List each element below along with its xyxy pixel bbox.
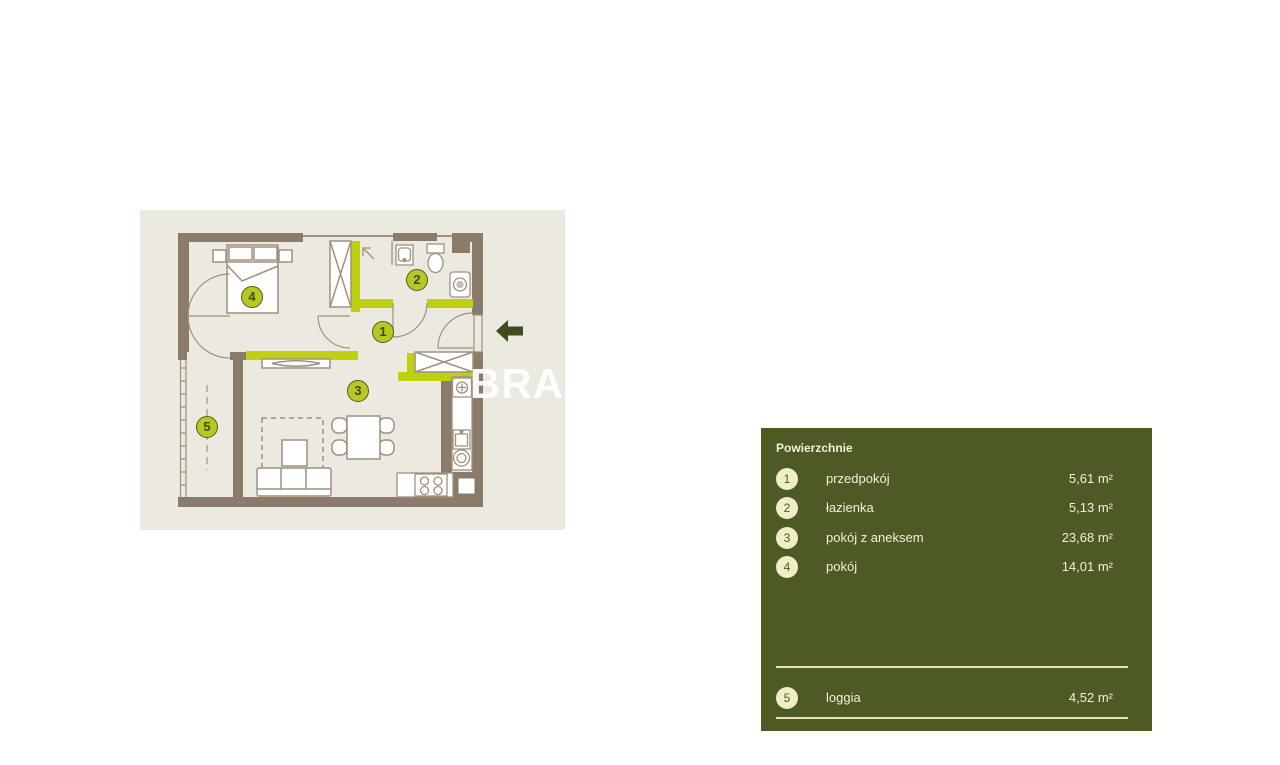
legend-item-number: 1 bbox=[776, 468, 798, 490]
legend-row-pokoj: 4 pokój 14,01 m² bbox=[761, 556, 1152, 578]
watermark: BRAC bbox=[470, 360, 565, 408]
entrance-door-arc bbox=[438, 313, 482, 352]
wardrobe-icon bbox=[330, 241, 351, 307]
legend-item-area: 4,52 m² bbox=[1069, 687, 1113, 709]
legend-item-label: łazienka bbox=[826, 497, 874, 519]
legend-item-area: 5,61 m² bbox=[1069, 468, 1113, 490]
room-badge-2: 2 bbox=[406, 269, 428, 291]
room-badge-5: 5 bbox=[196, 416, 218, 438]
floorplan-panel: 1 2 3 4 5 BRAC bbox=[140, 210, 565, 530]
legend-item-number: 5 bbox=[776, 687, 798, 709]
legend-item-area: 5,13 m² bbox=[1069, 497, 1113, 519]
legend-item-area: 23,68 m² bbox=[1062, 527, 1113, 549]
shower-arrow-icon bbox=[363, 248, 374, 259]
tv-icon bbox=[262, 359, 330, 368]
legend-panel: Powierzchnie 1 przedpokój 5,61 m² 2 łazi… bbox=[761, 428, 1152, 731]
page: 1 2 3 4 5 BRAC Powierzchnie 1 przedpokój… bbox=[0, 0, 1280, 765]
stove-icon bbox=[397, 473, 453, 497]
legend-row-lazienka: 2 łazienka 5,13 m² bbox=[761, 497, 1152, 519]
boiler-icon bbox=[453, 378, 472, 397]
legend-item-label: przedpokój bbox=[826, 468, 890, 490]
legend-item-label: pokój bbox=[826, 556, 857, 578]
washing-machine-icon bbox=[450, 272, 470, 297]
coffee-table-icon bbox=[282, 440, 307, 466]
legend-item-label: pokój z aneksem bbox=[826, 527, 924, 549]
hall-wardrobe-icon bbox=[415, 352, 473, 372]
shaft-inset bbox=[458, 478, 475, 494]
bathroom-door-arc bbox=[393, 303, 427, 337]
couch-icon bbox=[257, 468, 331, 496]
room-badge-1: 1 bbox=[372, 321, 394, 343]
legend-row-przedpokoj: 1 przedpokój 5,61 m² bbox=[761, 468, 1152, 490]
legend-item-number: 4 bbox=[776, 556, 798, 578]
legend-item-label: loggia bbox=[826, 687, 861, 709]
round-basin-icon bbox=[454, 450, 470, 466]
room-door-arc bbox=[318, 316, 350, 348]
loggia-door-arc bbox=[187, 274, 230, 358]
legend-item-number: 3 bbox=[776, 527, 798, 549]
room-badge-3: 3 bbox=[347, 380, 369, 402]
room-badge-4: 4 bbox=[241, 286, 263, 308]
legend-title: Powierzchnie bbox=[776, 441, 853, 455]
kitchen-sink-icon bbox=[453, 430, 470, 449]
legend-row-pokoj-z-aneksem: 3 pokój z aneksem 23,68 m² bbox=[761, 527, 1152, 549]
sink-icon bbox=[396, 245, 413, 265]
living-room-furniture bbox=[257, 359, 394, 496]
loggia-glazing bbox=[181, 360, 187, 497]
legend-item-area: 14,01 m² bbox=[1062, 556, 1113, 578]
legend-item-number: 2 bbox=[776, 497, 798, 519]
entrance-arrow-icon bbox=[495, 317, 525, 345]
legend-divider bbox=[776, 717, 1128, 719]
legend-row-loggia: 5 loggia 4,52 m² bbox=[761, 687, 1152, 709]
dining-table-icon bbox=[332, 416, 394, 459]
legend-divider bbox=[776, 666, 1128, 668]
toilet-icon bbox=[427, 244, 444, 273]
